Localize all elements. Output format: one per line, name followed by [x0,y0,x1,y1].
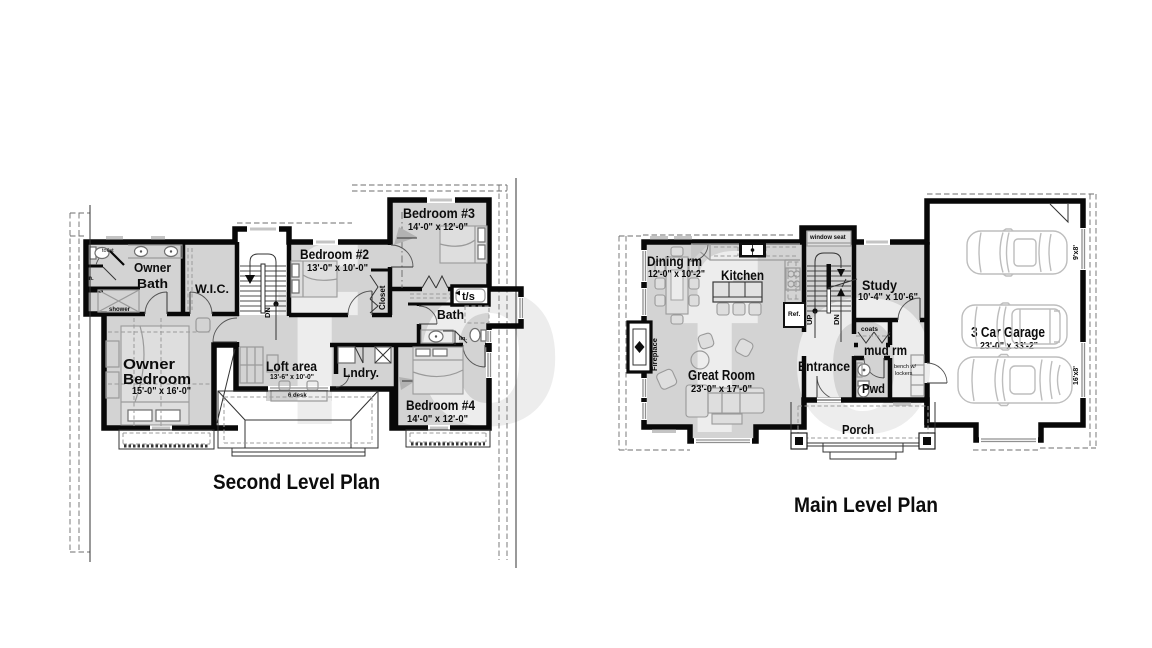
svg-text:Dining rm: Dining rm [647,253,702,269]
svg-text:Lndry.: Lndry. [343,365,379,380]
svg-text:Study: Study [862,278,897,293]
svg-text:UP: UP [805,315,814,325]
svg-text:Bath: Bath [437,308,464,322]
svg-text:Entrance: Entrance [798,359,850,374]
svg-text:Bath: Bath [137,276,168,291]
svg-text:lockers: lockers [895,371,913,377]
svg-text:W.I.C.: W.I.C. [195,282,229,296]
svg-text:window seat: window seat [809,235,846,241]
svg-text:10'-4" x 10'-6": 10'-4" x 10'-6" [858,292,918,303]
svg-text:3 Car Garage: 3 Car Garage [971,325,1045,341]
svg-text:Porch: Porch [842,422,874,437]
svg-text:shower: shower [109,307,131,313]
svg-text:DN: DN [832,314,841,325]
svg-text:t/s: t/s [462,291,475,303]
svg-text:lin.: lin. [85,276,94,282]
svg-text:coats: coats [861,326,878,333]
svg-text:Owner: Owner [134,260,171,275]
svg-text:mud rm: mud rm [864,343,907,358]
svg-text:Owner: Owner [123,357,175,373]
svg-text:14'-0" x 12'-0": 14'-0" x 12'-0" [408,222,468,233]
svg-text:12'-0" x 10'-2": 12'-0" x 10'-2" [648,269,705,280]
svg-text:Closet: Closet [378,285,387,310]
svg-text:Bedroom #4: Bedroom #4 [406,397,475,413]
svg-text:bench w/: bench w/ [894,364,916,370]
svg-text:23'-0" x 17'-0": 23'-0" x 17'-0" [691,384,752,395]
svg-text:16'x8': 16'x8' [1073,366,1080,385]
svg-text:14'-0" x 12'-0": 14'-0" x 12'-0" [407,414,468,425]
svg-text:23'-0" x 33'-2": 23'-0" x 33'-2" [980,341,1038,352]
svg-text:Second Level Plan: Second Level Plan [213,471,380,494]
svg-text:13'-6" x 10'-0": 13'-6" x 10'-0" [270,372,314,381]
svg-text:DN: DN [263,307,272,318]
svg-text:lin.: lin. [459,336,467,342]
svg-text:13'-0" x 10'-0": 13'-0" x 10'-0" [307,263,368,274]
svg-text:9'x8': 9'x8' [1073,245,1080,260]
svg-text:6 desk: 6 desk [288,393,307,399]
svg-text:Fireplace: Fireplace [650,338,659,371]
svg-text:Great Room: Great Room [688,368,755,384]
svg-text:Ref.: Ref. [788,311,800,318]
svg-text:Kitchen: Kitchen [721,268,764,283]
svg-text:15'-0" x 16'-0": 15'-0" x 16'-0" [132,386,191,397]
svg-text:Main Level Plan: Main Level Plan [794,494,938,517]
svg-text:Bedroom #3: Bedroom #3 [403,205,475,221]
svg-text:Pwd: Pwd [862,382,885,396]
svg-text:toilet: toilet [102,248,114,254]
svg-text:Bedroom #2: Bedroom #2 [300,246,369,262]
